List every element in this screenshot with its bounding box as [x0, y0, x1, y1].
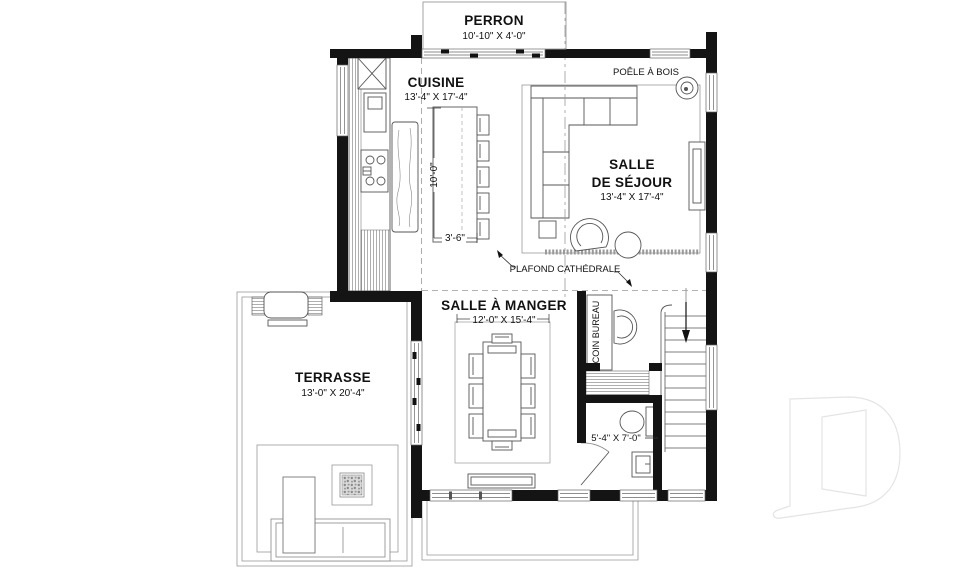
room-label-sejour-line2: DE SÉJOUR — [592, 175, 673, 190]
dining-chair — [521, 354, 535, 378]
bar-stool — [477, 193, 489, 213]
side-table — [539, 221, 556, 238]
dining-table — [483, 342, 521, 441]
ottoman — [615, 232, 641, 258]
window — [706, 233, 717, 272]
stair-direction-arrow — [682, 288, 690, 343]
armchair — [570, 219, 608, 251]
outdoor-lounge-set — [257, 445, 398, 561]
watermark-logo — [773, 397, 900, 518]
window — [706, 73, 717, 112]
room-dims-sejour: 13'-4" X 17'-4" — [600, 192, 664, 203]
room-dims-salle-a-manger: 12'-0" X 15'-4" — [472, 315, 536, 326]
floor-plan-canvas: PERRON 10'-10" X 4'-0" CUISINE 13'-4" X … — [0, 0, 960, 569]
tv-unit — [689, 142, 705, 210]
room-label-terrasse: TERRASSE — [295, 370, 371, 385]
room-dims-perron: 10'-10" X 4'-0" — [462, 31, 526, 42]
room-label-sejour-line1: SALLE — [609, 157, 655, 172]
dining-chair — [492, 334, 512, 343]
kitchen-island — [392, 122, 418, 232]
dining-chair — [521, 384, 535, 408]
room-dims-salle-eau: 5'-4" X 7'-0" — [591, 433, 640, 444]
window — [430, 490, 512, 501]
outdoor-chaise — [283, 477, 315, 553]
refrigerator — [358, 58, 386, 89]
desk-chair — [614, 310, 637, 344]
patio-outline — [422, 501, 638, 560]
window — [650, 49, 690, 58]
perron-door — [422, 49, 545, 58]
bar-stool — [477, 219, 489, 239]
window — [668, 490, 705, 501]
bar-stool — [477, 167, 489, 187]
bathroom-sink — [632, 452, 654, 477]
room-label-cuisine: CUISINE — [408, 75, 465, 90]
dining-chair — [469, 414, 483, 438]
wall-oven — [364, 93, 386, 132]
dining-chair — [469, 354, 483, 378]
room-dims-cuisine: 13'-4" X 17'-4" — [404, 92, 468, 103]
bar-stool — [477, 141, 489, 161]
annotation-poele-a-bois: POÊLE À BOIS — [613, 67, 679, 78]
staircase — [661, 288, 706, 452]
toilet — [620, 407, 655, 436]
window — [337, 65, 348, 136]
room-label-perron: PERRON — [464, 13, 524, 28]
bar-stools — [477, 115, 489, 239]
annotation-plafond-cathedrale: PLAFOND CATHÉDRALE — [510, 264, 621, 275]
dining-chair — [492, 441, 512, 450]
window — [620, 490, 657, 501]
dim-label-island-length: 10'-0" — [429, 162, 440, 188]
bathroom-door — [581, 443, 609, 485]
wood-stove-icon — [676, 77, 698, 99]
storage-hatch — [586, 371, 649, 395]
dim-label-island-clearance: 3'-6" — [445, 233, 465, 244]
room-label-coin-bureau: COIN BUREAU — [591, 301, 601, 364]
window — [558, 490, 590, 501]
buffet — [468, 474, 535, 488]
fire-table — [332, 465, 372, 505]
bar-stool — [477, 115, 489, 135]
cooktop — [361, 150, 388, 192]
dining-chair — [521, 414, 535, 438]
floor-plan: PERRON 10'-10" X 4'-0" CUISINE 13'-4" X … — [0, 0, 960, 569]
room-label-salle-a-manger: SALLE À MANGER — [441, 298, 567, 313]
bbq-grill — [252, 292, 322, 326]
dining-chair — [469, 384, 483, 408]
patio-door — [411, 341, 422, 445]
window — [706, 345, 717, 410]
room-dims-terrasse: 13'-0" X 20'-4" — [301, 388, 365, 399]
